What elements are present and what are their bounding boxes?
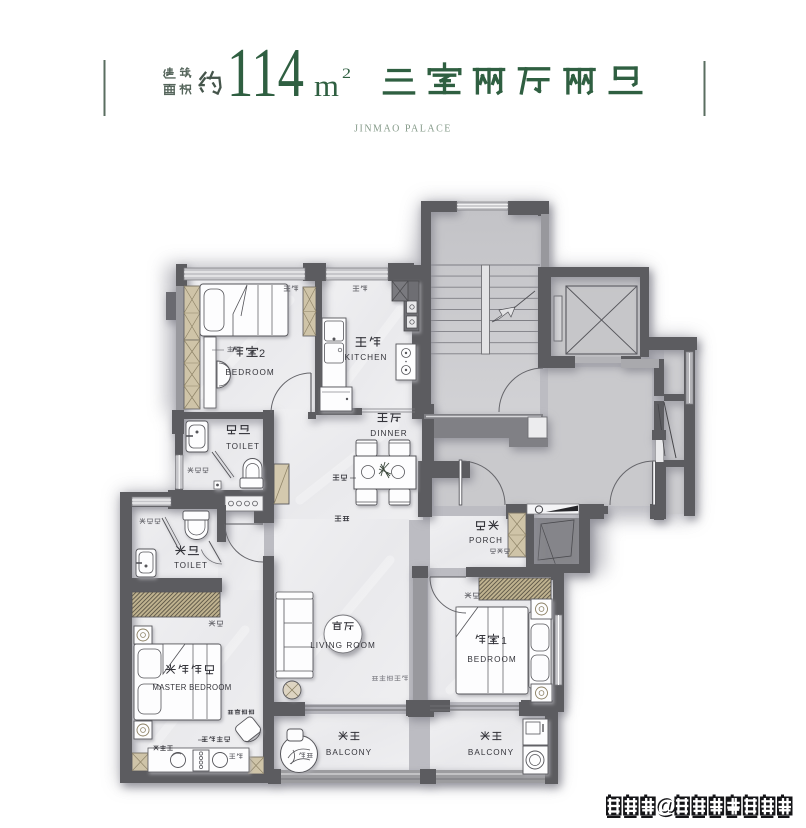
svg-text:KITCHEN: KITCHEN: [345, 353, 388, 362]
svg-text:JINMAO PALACE: JINMAO PALACE: [354, 124, 452, 135]
svg-text:1: 1: [501, 636, 507, 647]
svg-text:m: m: [314, 68, 339, 103]
svg-text:BEDROOM: BEDROOM: [225, 368, 274, 377]
svg-text:TOILET: TOILET: [226, 442, 260, 451]
svg-text:PORCH: PORCH: [469, 536, 503, 545]
svg-text:2: 2: [259, 348, 265, 360]
svg-text:BALCONY: BALCONY: [468, 748, 514, 757]
svg-text:BEDROOM: BEDROOM: [467, 655, 516, 664]
svg-text:BALCONY: BALCONY: [326, 748, 372, 757]
svg-text:TOILET: TOILET: [174, 561, 208, 570]
svg-text:2: 2: [342, 66, 351, 82]
svg-text:114: 114: [227, 35, 304, 112]
svg-text:@: @: [655, 793, 676, 818]
svg-text:DINNER: DINNER: [370, 429, 407, 438]
svg-text:LIVING ROOM: LIVING ROOM: [310, 641, 376, 650]
svg-text:MASTER BEDROOM: MASTER BEDROOM: [152, 683, 231, 692]
